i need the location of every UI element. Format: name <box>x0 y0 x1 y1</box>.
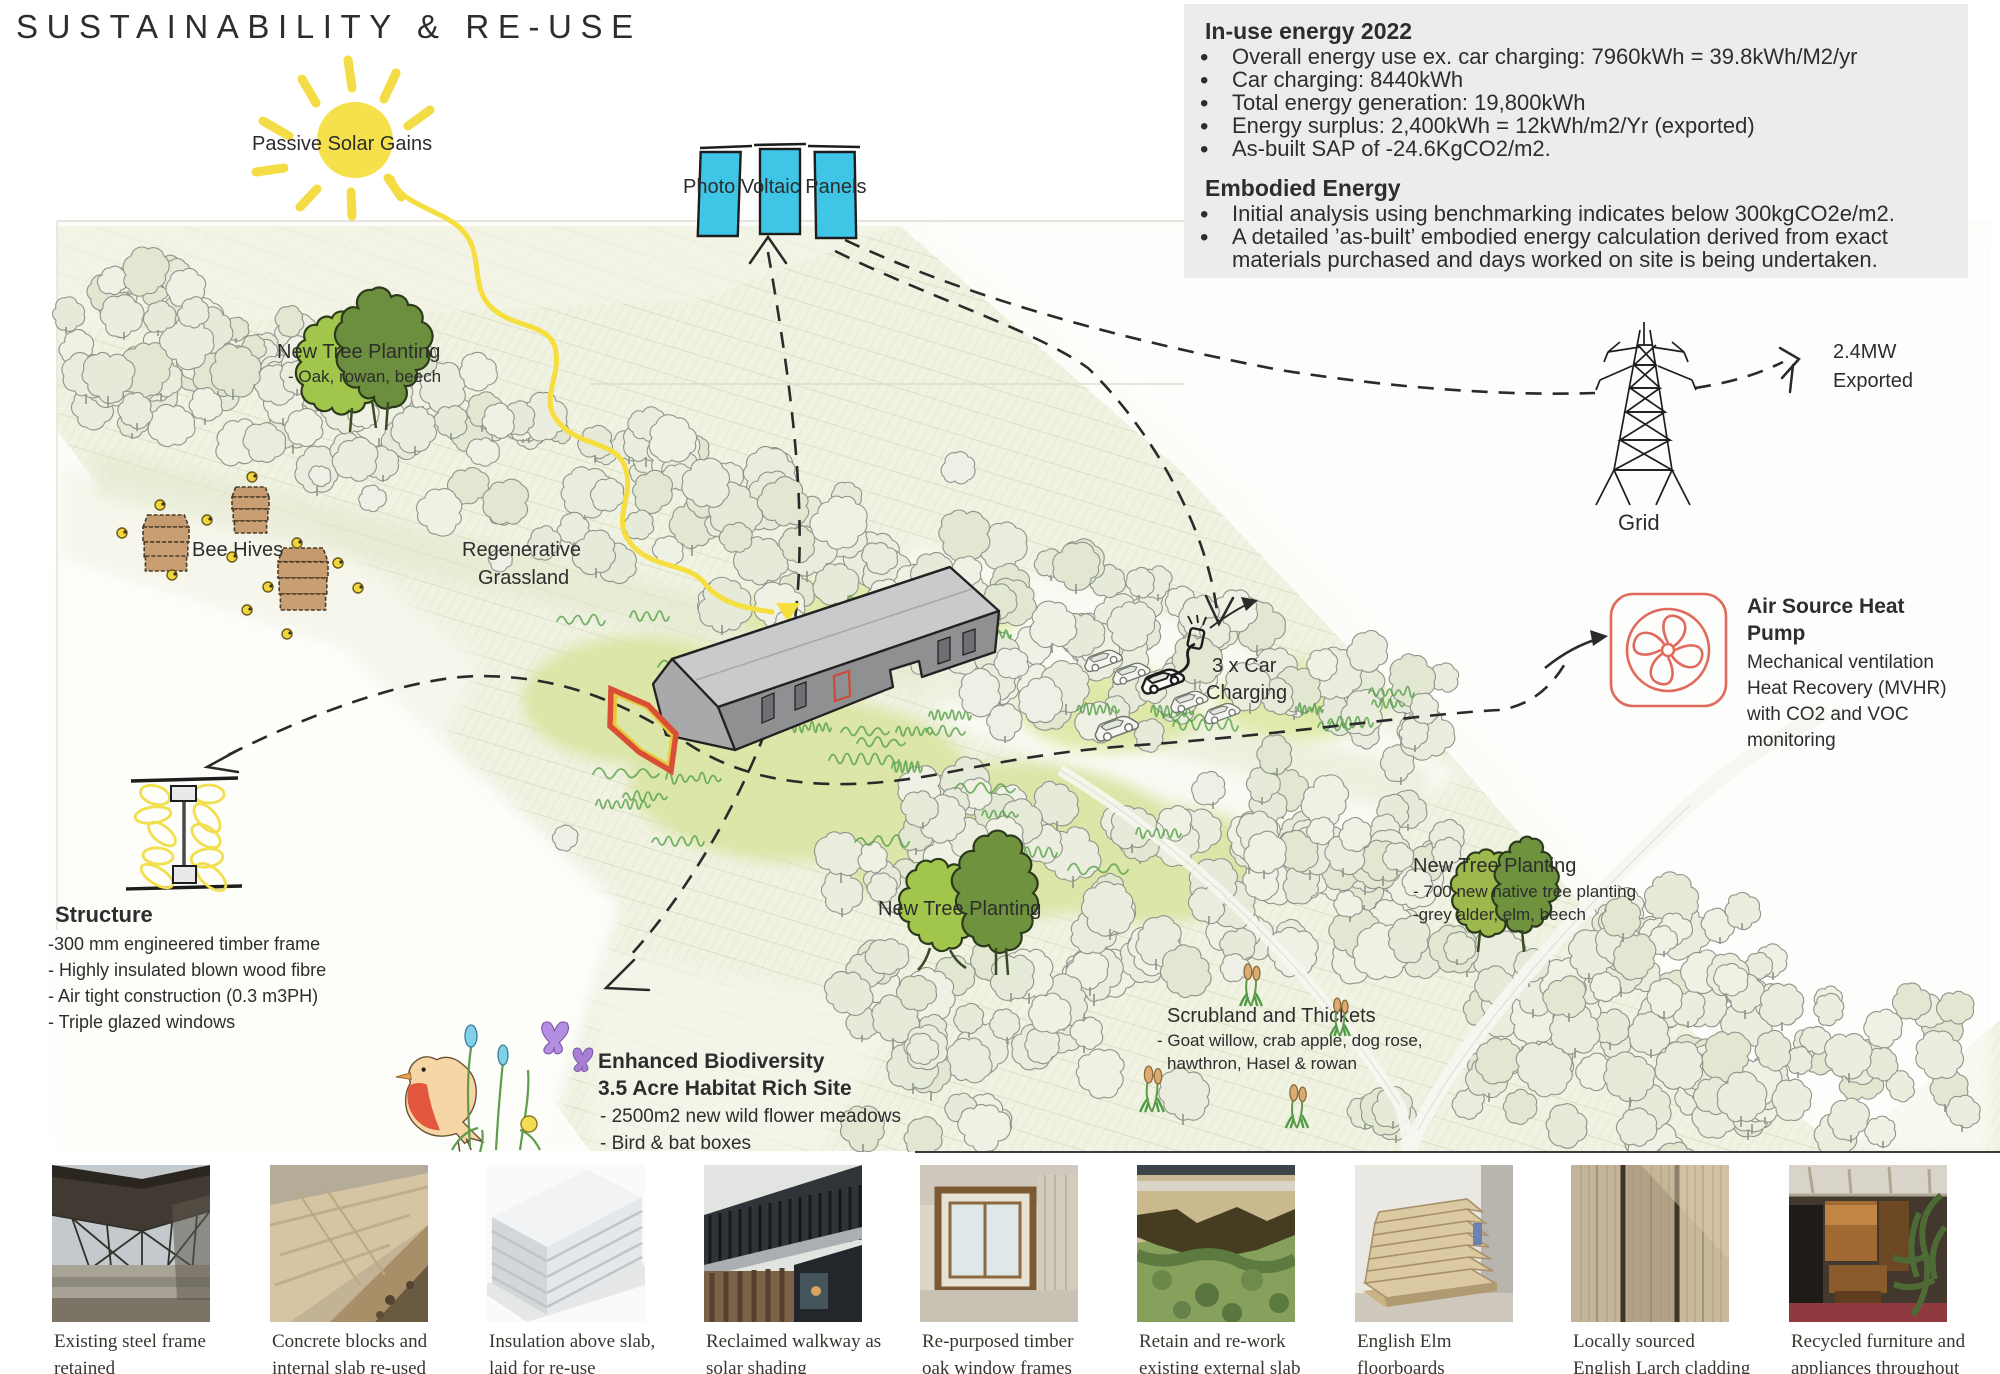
svg-text:•: • <box>1200 136 1208 163</box>
svg-text:laid for re-use: laid for re-use <box>489 1358 596 1374</box>
svg-text:Recycled furniture and: Recycled furniture and <box>1791 1331 1966 1352</box>
svg-text:Energy surplus: 2,400kWh =: Energy surplus: 2,400kWh = 12kWh/m2/Yr (… <box>1232 113 1755 138</box>
svg-text:Embodied Energy: Embodied Energy <box>1205 175 1401 201</box>
svg-text:Grassland: Grassland <box>478 567 569 589</box>
svg-text:Pump: Pump <box>1747 622 1805 645</box>
svg-text:Concrete blocks and: Concrete blocks and <box>272 1331 428 1352</box>
svg-text:appliances throughout: appliances throughout <box>1791 1358 1960 1374</box>
svg-text:- Bird & bat boxes: - Bird & bat boxes <box>600 1133 751 1154</box>
svg-text:Mechanical ventilation: Mechanical ventilation <box>1747 652 1934 673</box>
svg-text:Existing steel frame: Existing steel frame <box>54 1331 206 1352</box>
svg-text:Charging: Charging <box>1206 682 1287 704</box>
svg-text:Passive Solar Gains: Passive Solar Gains <box>252 133 432 155</box>
svg-text:As-built SAP of -24.6KgCO2/m2.: As-built SAP of -24.6KgCO2/m2. <box>1232 136 1551 161</box>
svg-text:In-use energy 2022: In-use energy 2022 <box>1205 18 1412 44</box>
svg-text:Insulation above slab,: Insulation above slab, <box>489 1331 655 1352</box>
svg-text:Heat Recovery (MVHR): Heat Recovery (MVHR) <box>1747 678 1947 699</box>
svg-text:English Elm: English Elm <box>1357 1331 1452 1352</box>
svg-text:- Oak, rowan, beech: - Oak, rowan, beech <box>288 367 441 386</box>
svg-text:Total energy generation: 19,80: Total energy generation: 19,800kWh <box>1232 90 1585 115</box>
svg-text:New Tree Planting: New Tree Planting <box>277 341 440 363</box>
svg-text:Retain and re-work: Retain and re-work <box>1139 1331 1286 1352</box>
svg-text:Reclaimed walkway as: Reclaimed walkway as <box>706 1331 881 1352</box>
svg-text:English Larch cladding: English Larch cladding <box>1573 1358 1751 1374</box>
svg-text:Car charging: 8440kWh: Car charging: 8440kWh <box>1232 67 1463 92</box>
svg-text:•: • <box>1200 224 1208 251</box>
svg-text:Bee Hives: Bee Hives <box>192 539 283 561</box>
svg-text:Overall energy use ex. car cha: Overall energy use ex. car charging: 796… <box>1232 44 1857 69</box>
svg-text:A detailed ’as-built’ embodied: A detailed ’as-built’ embodied energy ca… <box>1232 224 1888 249</box>
svg-text:-grey alder, elm, beech: -grey alder, elm, beech <box>1413 905 1586 924</box>
svg-text:SUSTAINABILITY & RE-USE: SUSTAINABILITY & RE-USE <box>16 8 642 45</box>
svg-text:Structure: Structure <box>55 902 153 927</box>
svg-text:Photo Voltaic Panels: Photo Voltaic Panels <box>683 176 866 198</box>
svg-text:Exported: Exported <box>1833 370 1913 392</box>
svg-text:- Goat willow, crab apple, dog: - Goat willow, crab apple, dog rose, <box>1157 1031 1423 1050</box>
svg-text:Locally sourced: Locally sourced <box>1573 1331 1695 1352</box>
svg-text:materials purchased and days w: materials purchased and days worked on s… <box>1232 247 1878 272</box>
svg-text:3.5 Acre Habitat Rich Site: 3.5 Acre Habitat Rich Site <box>598 1077 852 1100</box>
svg-text:New Tree Planting: New Tree Planting <box>1413 855 1576 877</box>
svg-text:Initial analysis using benchma: Initial analysis using benchmarking indi… <box>1232 201 1895 226</box>
svg-text:with CO2 and VOC: with CO2 and VOC <box>1746 704 1909 725</box>
svg-text:hawthron, Hasel & rowan: hawthron, Hasel & rowan <box>1167 1054 1357 1073</box>
svg-text:Regenerative: Regenerative <box>462 539 581 561</box>
svg-text:internal slab re-used: internal slab re-used <box>272 1358 427 1374</box>
svg-text:2.4MW: 2.4MW <box>1833 341 1896 363</box>
svg-text:Grid: Grid <box>1618 510 1660 535</box>
svg-text:monitoring: monitoring <box>1747 730 1836 751</box>
svg-text:oak window frames: oak window frames <box>922 1358 1072 1374</box>
svg-text:- 700 new native tree planting: - 700 new native tree planting <box>1413 882 1636 901</box>
svg-text:retained: retained <box>54 1358 116 1374</box>
svg-text:- Triple glazed windows: - Triple glazed windows <box>48 1012 235 1032</box>
svg-text:floorboards: floorboards <box>1357 1358 1445 1374</box>
svg-text:- Highly insulated blown wood: - Highly insulated blown wood fibre <box>48 960 326 980</box>
svg-text:Air Source Heat: Air Source Heat <box>1747 595 1905 618</box>
svg-text:existing external slab: existing external slab <box>1139 1358 1300 1374</box>
svg-text:-300 mm engineered timber fram: -300 mm engineered timber frame <box>48 934 320 954</box>
svg-text:Enhanced Biodiversity: Enhanced Biodiversity <box>598 1050 825 1073</box>
svg-text:- Air tight construction (0.3: - Air tight construction (0.3 m3PH) <box>48 986 318 1006</box>
svg-text:New Tree Planting: New Tree Planting <box>878 898 1041 920</box>
svg-text:solar shading: solar shading <box>706 1358 807 1374</box>
svg-text:3 x Car: 3 x Car <box>1212 655 1277 677</box>
svg-text:- 2500m2 new wild flower meado: - 2500m2 new wild flower meadows <box>600 1106 901 1127</box>
svg-text:Re-purposed timber: Re-purposed timber <box>922 1331 1074 1352</box>
